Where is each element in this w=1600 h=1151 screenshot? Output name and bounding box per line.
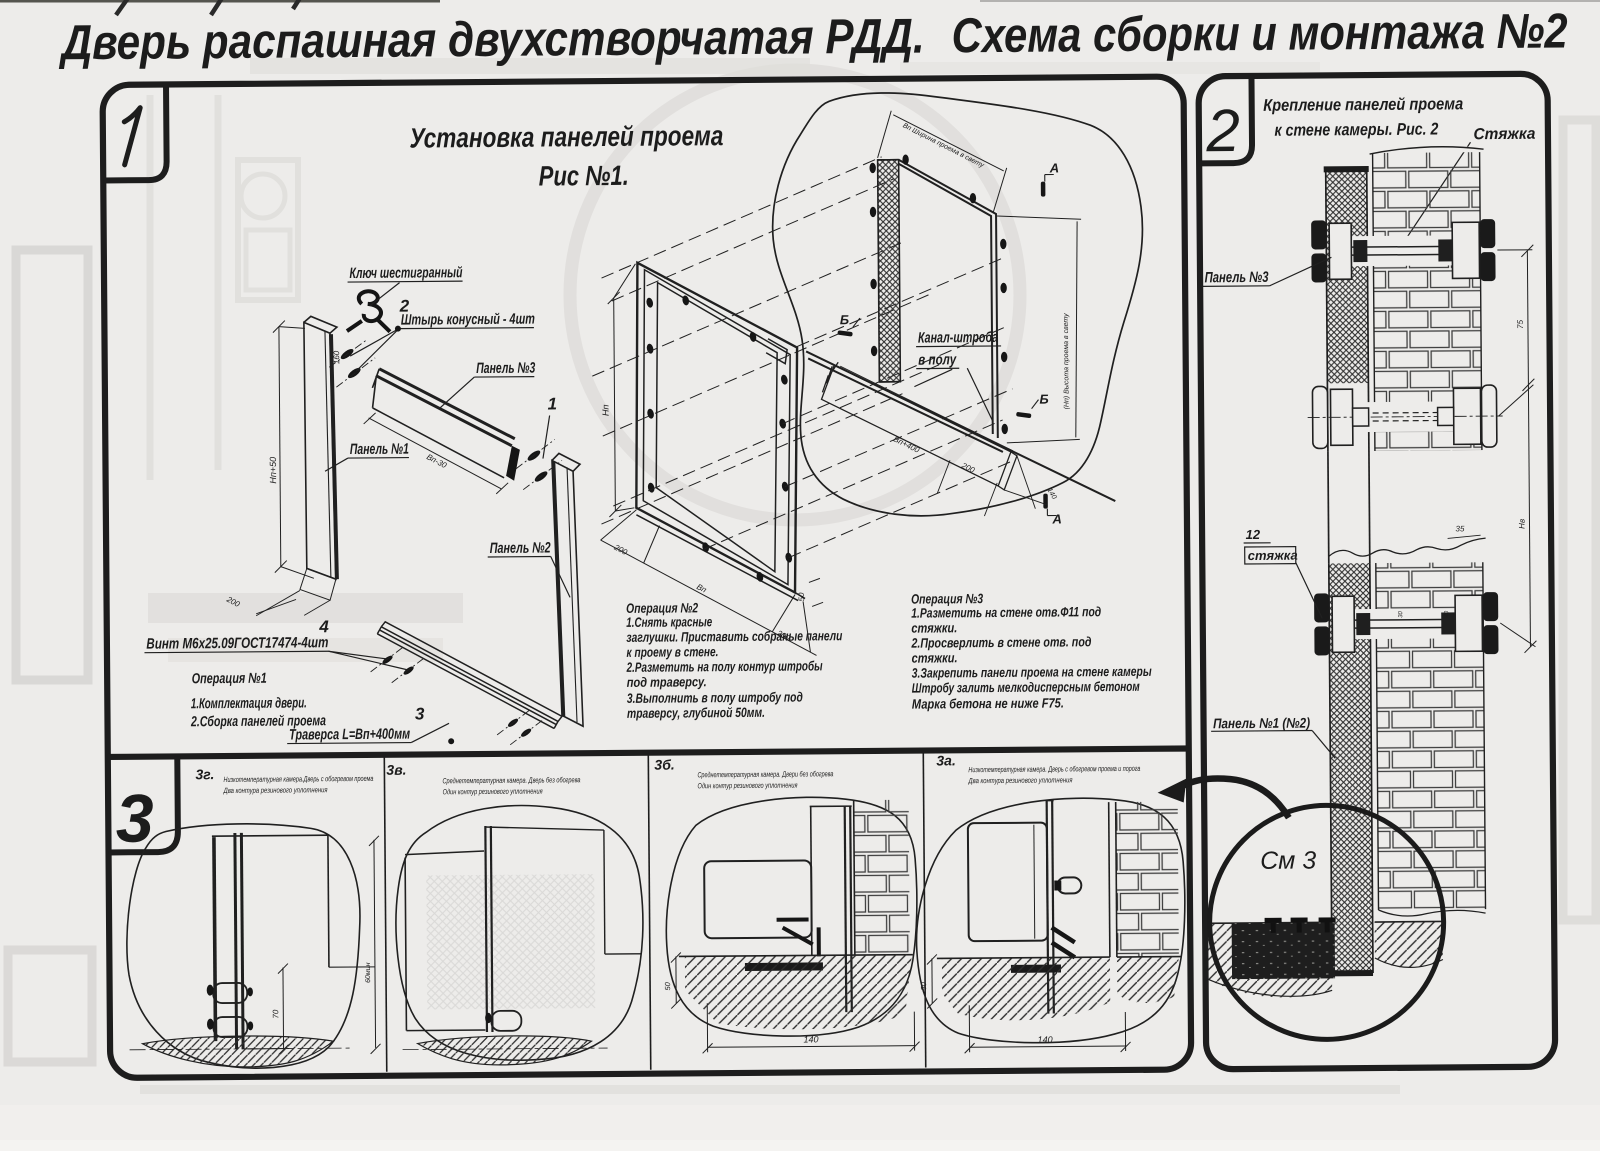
svg-text:Винт М6х25.09ГОСТ17474-4шт: Винт М6х25.09ГОСТ17474-4шт <box>146 634 328 652</box>
svg-text:Панель №1 (№2): Панель №1 (№2) <box>1213 715 1310 732</box>
svg-text:Операция №1: Операция №1 <box>192 671 267 688</box>
svg-text:Два контура резинового уплотне: Два контура резинового уплотнения <box>968 775 1073 785</box>
svg-text:Нв: Нв <box>1517 519 1526 529</box>
svg-text:40: 40 <box>1444 610 1450 617</box>
svg-text:Марка бетона не ниже F75.: Марка бетона не ниже F75. <box>912 695 1064 711</box>
svg-text:к стене камеры. Рис. 2: к стене камеры. Рис. 2 <box>1274 119 1439 139</box>
svg-text:Низкотемпературная камера. Две: Низкотемпературная камера. Дверь с обогр… <box>968 764 1140 774</box>
svg-text:под траверсу.: под траверсу. <box>627 674 707 690</box>
svg-text:50: 50 <box>797 592 806 602</box>
svg-text:60мин: 60мин <box>365 962 372 983</box>
svg-text:Среднетемпературная камера. Дв: Среднетемпературная камера. Дверь без об… <box>442 775 580 785</box>
svg-text:200: 200 <box>612 542 629 557</box>
svg-text:к проему в стене.: к проему в стене. <box>626 644 718 660</box>
svg-text:Дверь распашная двухстворчатая: Дверь распашная двухстворчатая РДД. <box>58 10 925 71</box>
svg-text:Низкотемпературная камера.Двер: Низкотемпературная камера.Дверь с обогре… <box>223 774 373 784</box>
svg-text:Вп+400: Вп+400 <box>892 434 921 455</box>
svg-text:30: 30 <box>1398 610 1404 617</box>
svg-text:Один контур резинового уплотне: Один контур резинового уплотнения <box>443 787 543 797</box>
svg-text:2.Разметить на полу контур штр: 2.Разметить на полу контур штробы <box>626 658 823 675</box>
svg-text:Вп-30: Вп-30 <box>425 452 449 470</box>
svg-text:Б: Б <box>1039 392 1048 407</box>
svg-text:70: 70 <box>271 1009 280 1019</box>
svg-text:Один контур резинового уплотне: Один контур резинового уплотнения <box>697 781 797 791</box>
svg-text:Канал-штроба: Канал-штроба <box>918 329 998 347</box>
svg-text:Стяжка: Стяжка <box>1473 126 1535 143</box>
svg-text:Б: Б <box>840 312 849 327</box>
svg-text:1.Разметить на стене отв.Ф11 п: 1.Разметить на стене отв.Ф11 под <box>911 604 1101 620</box>
svg-text:Схема сборки и монтажа №2: Схема сборки и монтажа №2 <box>951 4 1567 63</box>
svg-text:Крепление панелей проема: Крепление панелей проема <box>1263 94 1463 115</box>
svg-text:Вп: Вп <box>695 582 708 595</box>
svg-text:Нп+50: Нп+50 <box>268 457 278 484</box>
svg-text:3б.: 3б. <box>654 757 674 773</box>
svg-text:3: 3 <box>115 781 154 857</box>
svg-text:Панель №1: Панель №1 <box>350 441 409 458</box>
svg-text:Установка панелей проема: Установка панелей проема <box>409 120 723 153</box>
svg-text:Рис №1.: Рис №1. <box>539 160 629 192</box>
svg-text:50: 50 <box>919 981 928 990</box>
svg-text:стяжка: стяжка <box>1248 548 1298 563</box>
svg-text:траверсу, глубиной 50мм.: траверсу, глубиной 50мм. <box>627 705 765 721</box>
svg-text:160: 160 <box>332 350 341 364</box>
svg-text:Среднетемпературная камера. Дв: Среднетемпературная камера. Двери без об… <box>697 769 833 779</box>
svg-text:Два контура резинового уплотне: Два контура резинового уплотнения <box>223 785 328 795</box>
svg-text:Траверса L=Вп+400мм: Траверса L=Вп+400мм <box>289 726 410 744</box>
svg-text:2.Просверлить в стене отв. по: 2.Просверлить в стене отв. под <box>911 634 1092 650</box>
svg-text:3в.: 3в. <box>386 762 406 778</box>
svg-text:3а.: 3а. <box>936 752 956 768</box>
svg-text:140: 140 <box>803 1034 818 1044</box>
svg-text:1: 1 <box>547 394 557 413</box>
svg-text:стяжки.: стяжки. <box>911 620 957 635</box>
svg-text:А: А <box>1051 511 1062 526</box>
svg-text:Ключ шестигранный: Ключ шестигранный <box>349 264 462 282</box>
svg-text:стяжки.: стяжки. <box>911 650 957 665</box>
svg-text:Штробу залить мелкодисперсным: Штробу залить мелкодисперсным бетоном <box>912 679 1140 696</box>
svg-text:140: 140 <box>1037 1035 1052 1045</box>
svg-text:Панель №3: Панель №3 <box>476 360 536 377</box>
svg-text:См 3: См 3 <box>1260 846 1316 874</box>
svg-text:1.Комплектация двери.: 1.Комплектация двери. <box>191 695 307 712</box>
svg-text:Нп: Нп <box>601 405 611 417</box>
svg-text:200: 200 <box>959 461 976 476</box>
svg-text:3.Выполнить в полу штробу под: 3.Выполнить в полу штробу под <box>627 689 803 705</box>
svg-text:12: 12 <box>1246 527 1261 542</box>
svg-text:75: 75 <box>1516 319 1525 329</box>
svg-text:А: А <box>1049 160 1060 175</box>
svg-text:Панель №2: Панель №2 <box>490 539 552 556</box>
svg-text:Штырь конусный - 4шт: Штырь конусный - 4шт <box>401 311 535 329</box>
svg-text:50: 50 <box>663 981 672 990</box>
svg-text:заглушки. Приставить собраные: заглушки. Приставить собраные панели <box>626 628 843 645</box>
svg-text:3г.: 3г. <box>195 766 214 782</box>
svg-text:Панель №3: Панель №3 <box>1204 269 1269 287</box>
svg-text:1.Снять красные: 1.Снять красные <box>626 614 712 630</box>
svg-text:(Нп) Высота проема в свету: (Нп) Высота проема в свету <box>1063 313 1071 410</box>
svg-text:в полу: в полу <box>918 351 957 368</box>
svg-text:3: 3 <box>415 704 425 723</box>
svg-text:2: 2 <box>1205 97 1240 164</box>
svg-text:35: 35 <box>1456 524 1466 533</box>
